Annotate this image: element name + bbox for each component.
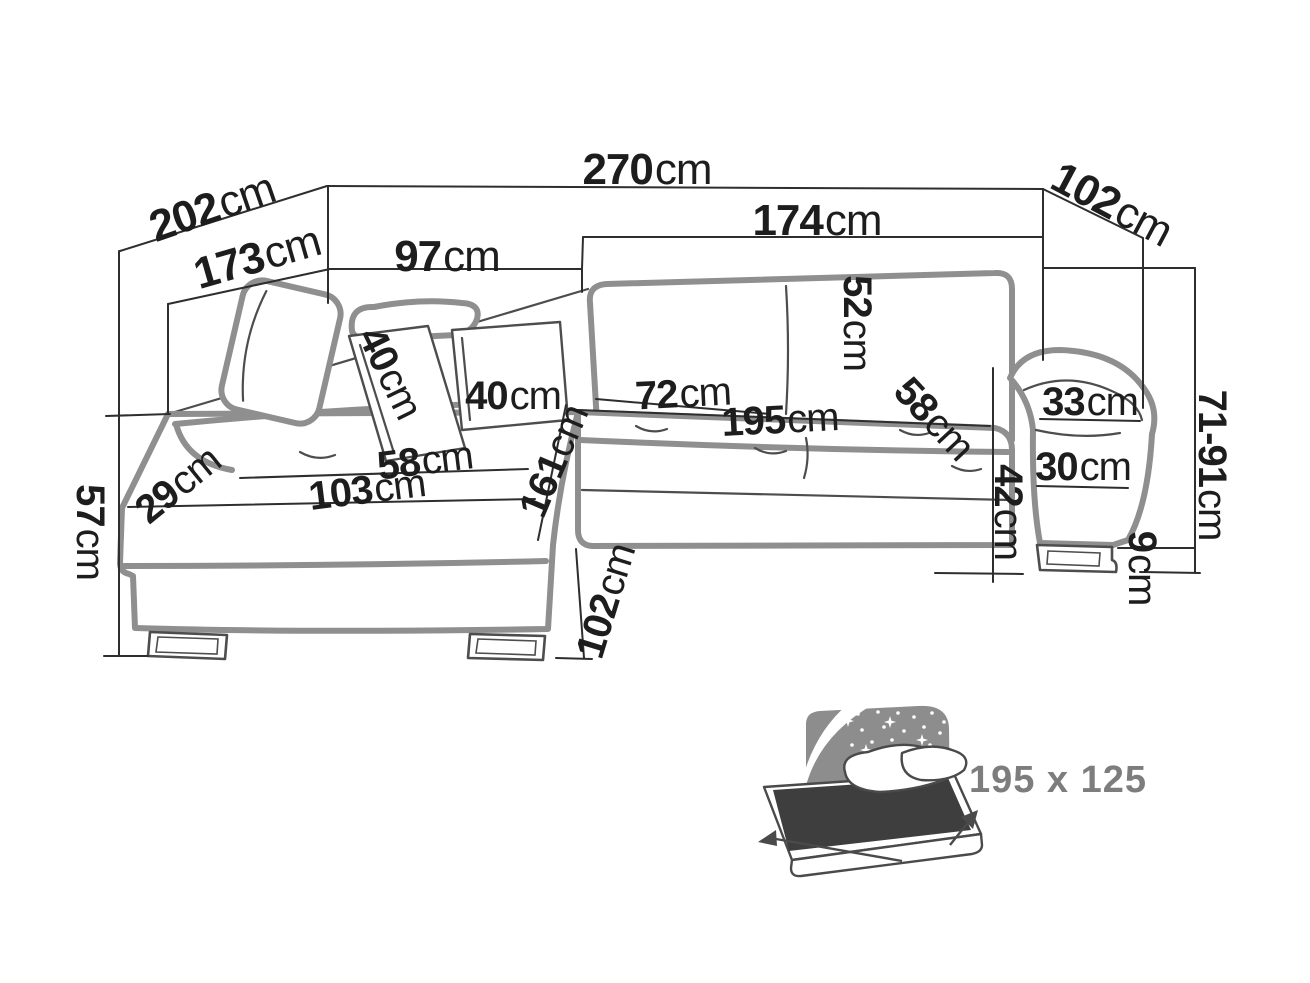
dim-cushion-b-label: 40cm: [465, 374, 561, 418]
diagram-canvas: 270cm 202cm 173cm 97cm 174cm 102cm 52cm …: [0, 0, 1310, 983]
headrest: [217, 276, 344, 427]
dim-armrest-top-width-label: 33cm: [1042, 380, 1138, 424]
sleeping-area-caption: 195 x 125: [969, 759, 1147, 801]
dim-end-depth-label: 102cm: [1044, 152, 1181, 256]
dim-backrest-height-label: 52cm: [835, 275, 879, 371]
dim-back-width-left-label: 97cm: [394, 232, 500, 281]
dim-back-height-range-label: 71-91cm: [1190, 390, 1234, 541]
chaise-foot-right: [468, 634, 545, 660]
dim-total-width-label: 270cm: [582, 145, 711, 194]
dim-armrest-height-label: 30cm: [1035, 445, 1131, 489]
dim-seat-depth-label: 72cm: [634, 370, 732, 419]
tick-42-bottom: [935, 573, 1023, 574]
tick-102-bottom: [556, 658, 592, 659]
bed-arrow-width-head: [758, 830, 777, 846]
right-foot: [1037, 545, 1117, 572]
tick-57-top: [106, 414, 170, 416]
sleeping-area-icon: 195 x 125: [758, 704, 1147, 876]
dim-seat-height-label: 42cm: [986, 464, 1030, 560]
ext-97-174-step: [582, 237, 583, 292]
dim-leg-height-label: 9cm: [1120, 531, 1164, 606]
dim-back-width-right-label: 174cm: [752, 196, 881, 245]
sofa-dimension-diagram: 270cm 202cm 173cm 97cm 174cm 102cm 52cm …: [0, 0, 1310, 983]
chaise-foot-left: [148, 632, 227, 659]
dim-side-height-label: 57cm: [68, 484, 112, 580]
bed-pillow-2: [902, 747, 967, 781]
dim-bed-length-label: 195cm: [720, 395, 839, 445]
